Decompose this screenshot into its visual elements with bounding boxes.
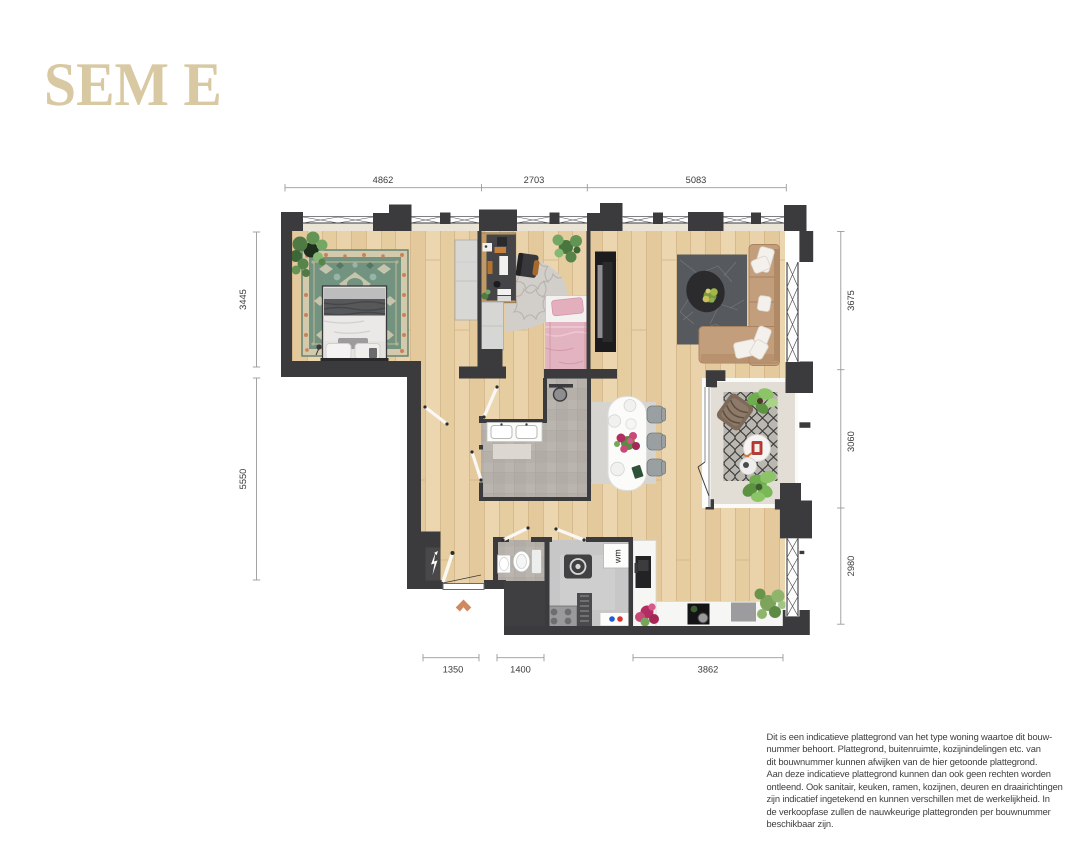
svg-text:2980: 2980 (846, 556, 856, 577)
svg-text:4862: 4862 (373, 175, 394, 185)
svg-text:1350: 1350 (443, 665, 464, 675)
svg-text:2703: 2703 (524, 175, 545, 185)
svg-text:3862: 3862 (698, 665, 719, 675)
svg-text:3675: 3675 (846, 290, 856, 311)
svg-text:wm: wm (613, 549, 623, 564)
svg-text:5550: 5550 (238, 469, 248, 490)
svg-text:1400: 1400 (510, 665, 531, 675)
svg-text:5083: 5083 (686, 175, 707, 185)
svg-text:3445: 3445 (238, 289, 248, 310)
svg-text:3060: 3060 (846, 431, 856, 452)
